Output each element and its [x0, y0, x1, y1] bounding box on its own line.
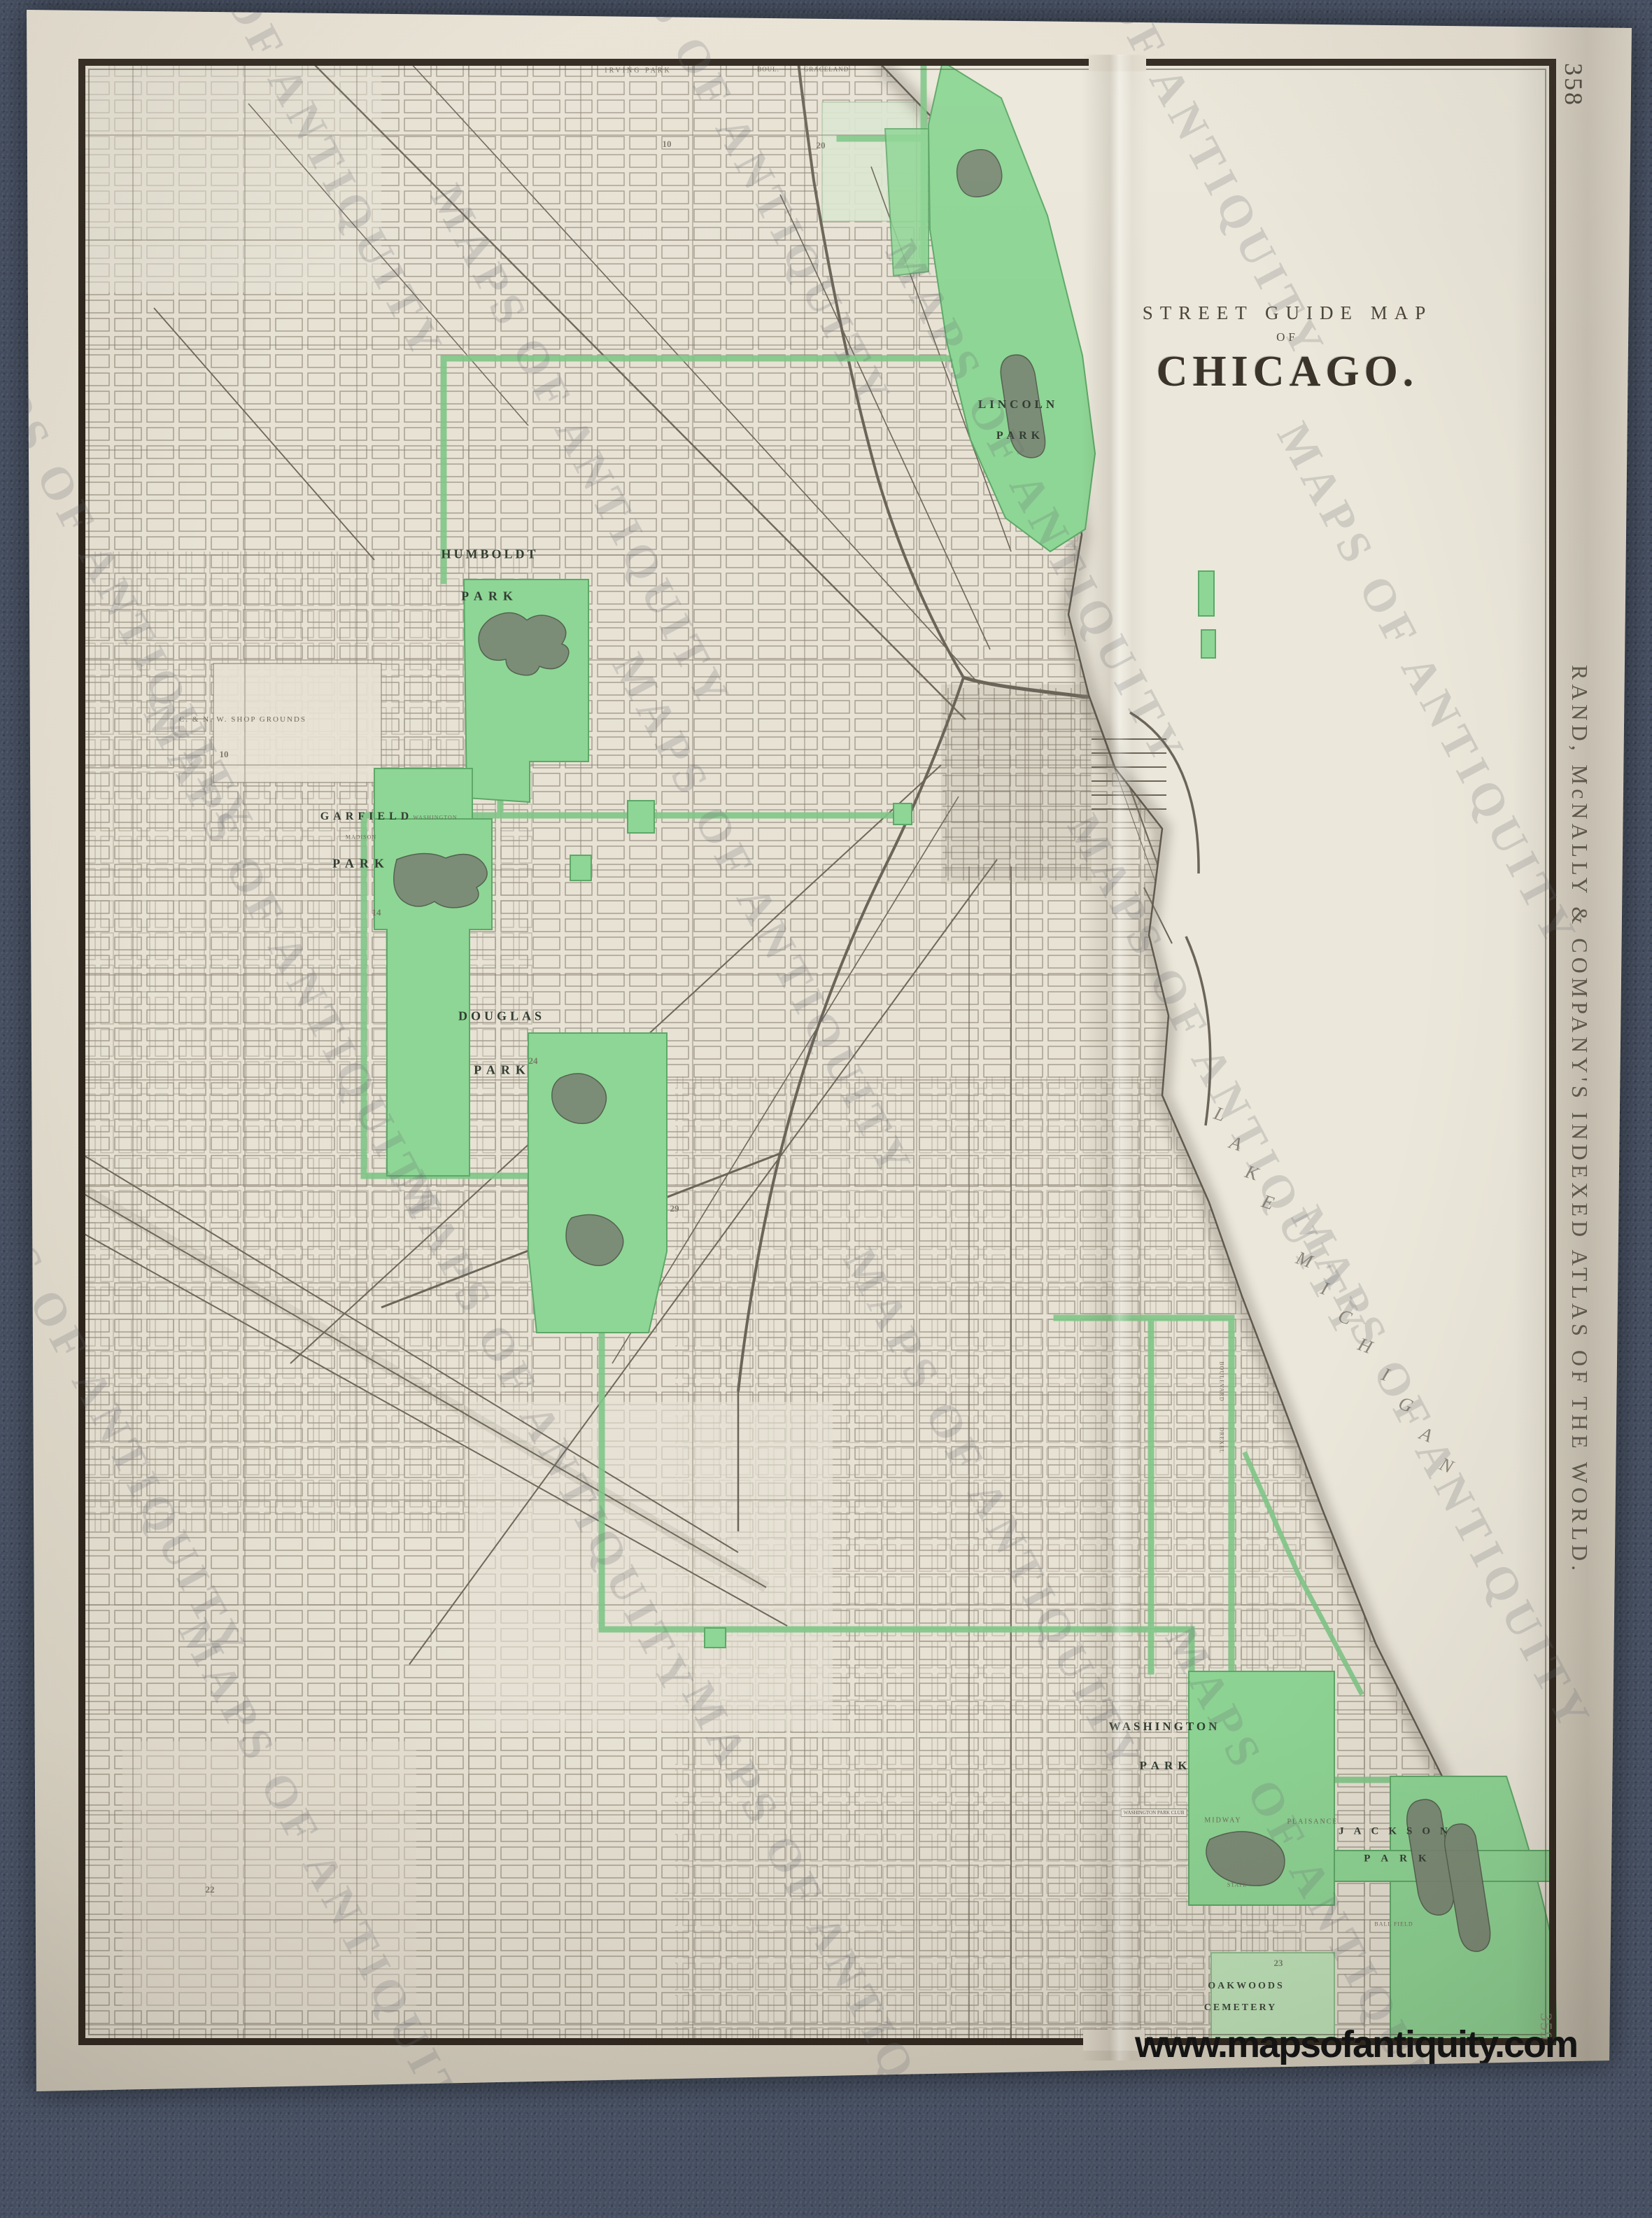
title-line1: STREET GUIDE MAP	[1127, 302, 1448, 324]
page-number: 358	[1559, 63, 1588, 107]
title-city: CHICAGO.	[1127, 347, 1448, 397]
map-title: STREET GUIDE MAP OF CHICAGO.	[1127, 302, 1448, 397]
title-line2: OF	[1127, 330, 1448, 344]
fold-gap-top	[1089, 56, 1146, 71]
paper-sheet-wrap: LINCOLNPARKHUMBOLDTPARKGARFIELDPARKDOUGL…	[0, 0, 1652, 2100]
website-overlay: www.mapsofantiquity.com	[1135, 2023, 1577, 2066]
atlas-caption: RAND, McNALLY & COMPANY'S INDEXED ATLAS …	[1559, 606, 1593, 1634]
map-sheet: LINCOLNPARKHUMBOLDTPARKGARFIELDPARKDOUGL…	[0, 0, 1652, 2100]
pencil-note: RM 98	[1607, 1999, 1628, 2072]
photo-of-antique-map: LINCOLNPARKHUMBOLDTPARKGARFIELDPARKDOUGL…	[0, 0, 1652, 2100]
